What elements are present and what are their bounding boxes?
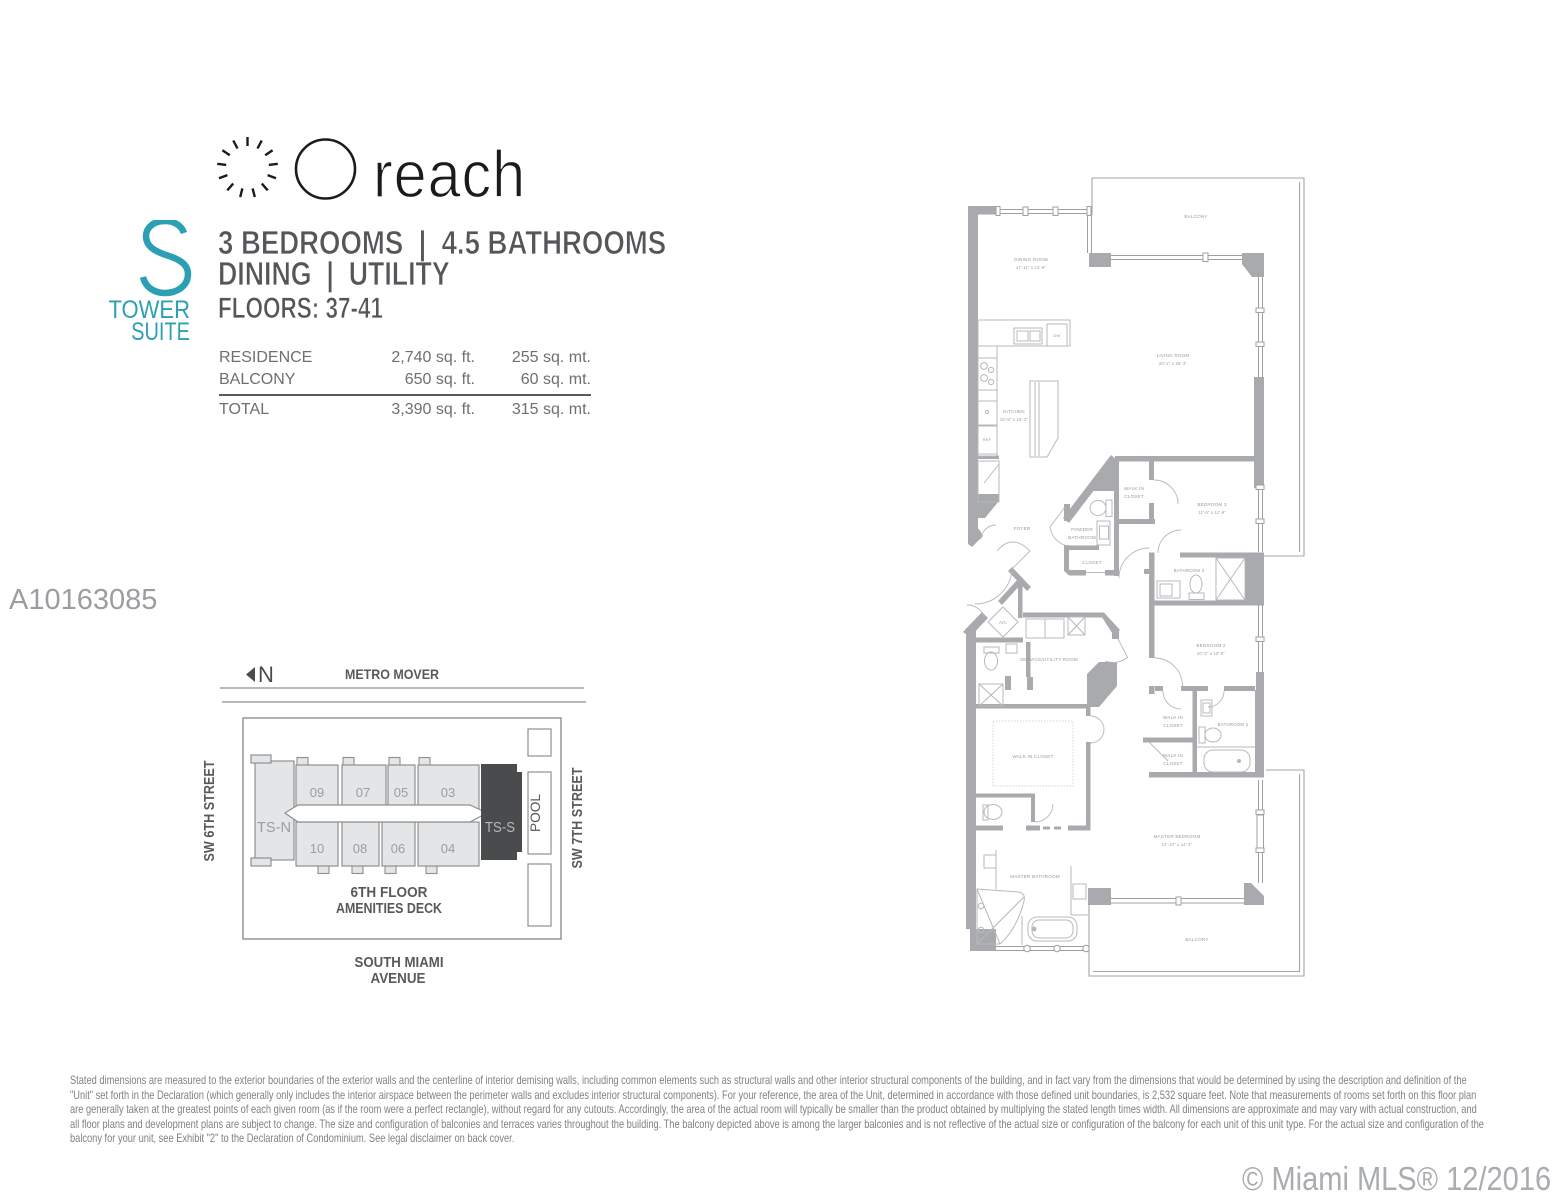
svg-text:AMENITIES DECK: AMENITIES DECK [336, 901, 442, 917]
svg-text:BEDROOM 2: BEDROOM 2 [1196, 643, 1226, 648]
svg-text:TS-S: TS-S [485, 819, 515, 836]
svg-text:CLOSET: CLOSET [1163, 761, 1183, 766]
svg-text:A/C: A/C [999, 620, 1007, 625]
svg-text:WALK IN: WALK IN [1163, 715, 1183, 720]
svg-text:10'-8" x 16'-2": 10'-8" x 16'-2" [1000, 417, 1029, 422]
svg-text:REF: REF [983, 437, 992, 442]
svg-text:POWDER: POWDER [1071, 527, 1093, 532]
svg-text:WALK IN: WALK IN [1163, 753, 1183, 758]
svg-text:WALK IN CLOSET: WALK IN CLOSET [1012, 754, 1053, 759]
svg-text:08: 08 [353, 841, 367, 856]
svg-text:09: 09 [310, 785, 324, 800]
svg-text:BATHROOM: BATHROOM [1068, 535, 1096, 540]
svg-text:BATHROOM 2: BATHROOM 2 [1218, 722, 1249, 727]
svg-text:N: N [258, 662, 274, 687]
svg-text:10: 10 [310, 841, 324, 856]
svg-text:SOUTH MIAMI: SOUTH MIAMI [355, 954, 444, 971]
svg-text:DW: DW [1053, 333, 1060, 338]
svg-text:07: 07 [356, 785, 370, 800]
svg-text:SW 6TH STREET: SW 6TH STREET [201, 761, 218, 862]
svg-text:KITCHEN: KITCHEN [1003, 409, 1025, 414]
svg-text:BATHROOM 3: BATHROOM 3 [1174, 568, 1205, 573]
svg-text:SW 7TH STREET: SW 7TH STREET [569, 768, 586, 869]
svg-text:POOL: POOL [527, 794, 543, 832]
svg-text:CLOSET: CLOSET [1082, 560, 1102, 565]
svg-text:CLOSET: CLOSET [1163, 723, 1183, 728]
svg-text:BEDROOM 3: BEDROOM 3 [1197, 502, 1227, 507]
svg-text:WALK IN: WALK IN [1124, 486, 1144, 491]
svg-text:05: 05 [394, 785, 408, 800]
svg-text:LIVING ROOM: LIVING ROOM [1157, 353, 1190, 358]
svg-text:METRO MOVER: METRO MOVER [345, 666, 439, 682]
svg-text:MASTER BEDROOM: MASTER BEDROOM [1154, 834, 1201, 839]
svg-text:DINING ROOM: DINING ROOM [1014, 257, 1048, 262]
svg-text:BALCONY: BALCONY [1185, 937, 1208, 942]
svg-text:17'-11" x 13'-9": 17'-11" x 13'-9" [1016, 265, 1047, 270]
svg-text:BALCONY: BALCONY [1184, 214, 1207, 219]
svg-text:6TH FLOOR: 6TH FLOOR [351, 885, 428, 901]
svg-text:TS-N: TS-N [257, 819, 291, 836]
svg-text:SERVICE/UTILITY ROOM: SERVICE/UTILITY ROOM [1020, 657, 1078, 662]
svg-text:03: 03 [441, 785, 455, 800]
svg-text:12'-0" x 11'-9": 12'-0" x 11'-9" [1198, 510, 1226, 515]
svg-text:MASTER BATHROOM: MASTER BATHROOM [1010, 874, 1060, 879]
svg-text:CLOSET: CLOSET [1124, 494, 1144, 499]
svg-text:04: 04 [441, 841, 455, 856]
svg-text:06: 06 [391, 841, 405, 856]
svg-text:20'-2" x 25'-3": 20'-2" x 25'-3" [1159, 361, 1188, 366]
svg-text:FOYER: FOYER [1014, 526, 1031, 531]
svg-text:12'-10" x 14'-2": 12'-10" x 14'-2" [1162, 842, 1193, 847]
svg-text:10'-3" x 12'-0": 10'-3" x 12'-0" [1197, 651, 1226, 656]
svg-text:AVENUE: AVENUE [371, 970, 426, 987]
